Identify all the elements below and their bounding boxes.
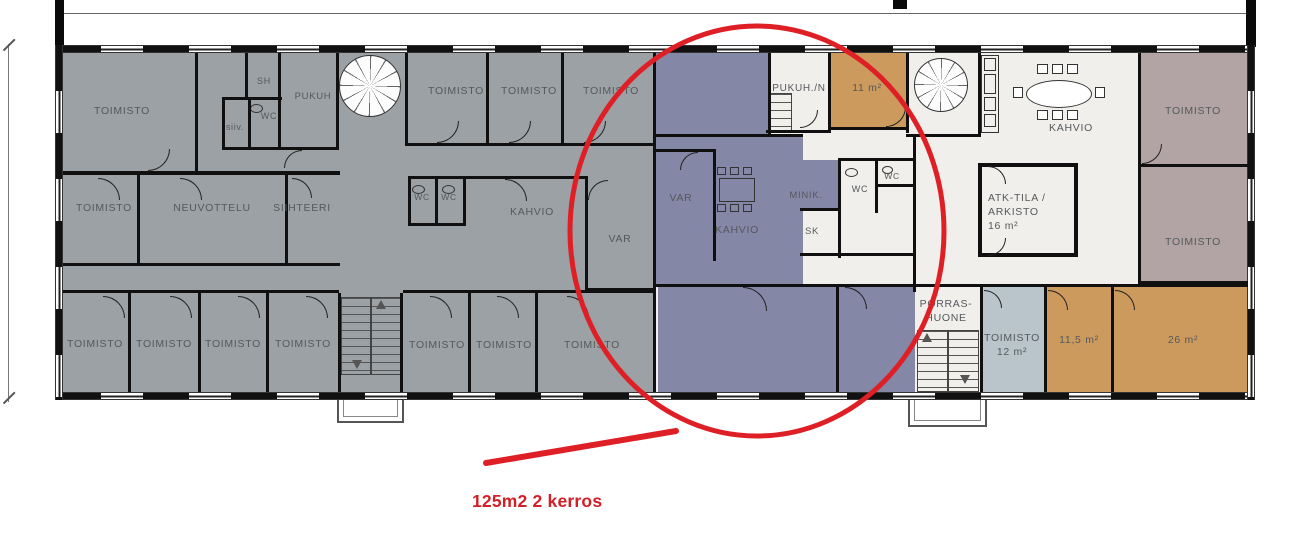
interior-wall [336,53,339,150]
room-label: TOIMISTO [476,338,532,352]
interior-wall [535,293,538,392]
interior-wall [338,293,341,392]
fixture [984,58,996,71]
interior-wall [248,100,251,150]
interior-wall [978,53,981,135]
interior-wall [656,134,803,137]
room-label: KAHVIO [715,223,759,237]
dimension-tick [3,39,15,51]
room-toimisto-mauve-bottom [1140,166,1248,282]
interior-wall [285,175,288,263]
interior-wall [63,263,340,266]
exterior-wall-bottom [55,392,1255,400]
interior-wall [656,149,716,152]
room-label: 26 m² [1168,333,1198,347]
fixture [717,167,726,175]
interior-wall [222,97,282,100]
fixture [984,74,996,94]
staircase [341,297,401,375]
room-label: TOIMISTO [409,338,465,352]
room-label: 11,5 m² [1059,333,1099,347]
fixture [1095,87,1105,98]
interior-wall [585,176,588,291]
room-label: SH [257,74,271,88]
fixture [719,178,755,202]
stair-direction-arrow [376,300,386,309]
dimension-line [8,44,9,402]
exterior-wall-left [55,45,63,400]
interior-wall [713,151,716,261]
room-label: SIIHTEERI [273,201,331,215]
room-label: TOIMISTO [76,201,132,215]
interior-wall [906,53,909,133]
room-label: WC [852,182,868,196]
spiral-stair-icon [914,58,968,112]
interior-wall [278,53,281,150]
interior-wall [766,130,831,133]
interior-wall [195,53,198,173]
room-label: TOIMISTO [205,337,261,351]
room-label: siiv. [226,120,244,134]
interior-wall [245,53,248,100]
interior-wall [468,293,471,392]
dimension-tick [3,392,15,404]
interior-wall [878,184,915,187]
wall-segment [893,0,907,9]
interior-wall [1044,287,1047,392]
interior-wall [435,176,438,226]
room-label: PUKUH [295,90,332,104]
room-label: TOIMISTO [275,337,331,351]
roof-edge-line [55,13,1255,14]
room-label: PUKUH./N [772,82,825,96]
fixture [1067,110,1078,120]
fixture [730,167,739,175]
fixture [1037,110,1048,120]
fixture [984,114,996,127]
room-label: TOIMISTO [1165,235,1221,249]
interior-wall [800,253,915,256]
fixture [1067,64,1078,74]
interior-wall [656,284,915,287]
room-label: ATK-TILA / ARKISTO 16 m² [988,191,1046,233]
room-label: VAR [609,232,632,246]
interior-wall [836,287,839,392]
interior-wall [463,176,588,179]
staircase [770,93,792,133]
exterior-wall-right [1247,45,1255,400]
interior-wall [915,284,1248,287]
room-label: PORRAS- HUONE [920,297,973,325]
interior-wall [913,134,916,292]
fixture [984,97,996,111]
room-label: WC [261,109,277,123]
interior-wall [768,53,771,137]
room-label: NEUVOTTELU [173,201,251,215]
room-label: 11 m² [852,81,882,95]
room-label: TOIMISTO [67,337,123,351]
annotation-pointer-line [486,431,676,463]
fixture [743,204,752,212]
interior-wall [980,287,983,392]
floorplan-canvas: TOIMISTOSHsiiv.WCPUKUHTOIMISTOTOIMISTOTO… [0,0,1291,554]
fixture [1052,110,1063,120]
interior-wall [198,293,201,392]
wall-segment [1246,0,1256,47]
stair-direction-arrow [352,360,362,369]
room-label: TOIMISTO [1165,104,1221,118]
interior-wall [486,53,489,145]
fixture [1013,87,1023,98]
room-label: WC [884,169,900,183]
interior-wall [405,143,656,146]
fixture [1037,64,1048,74]
interior-wall [405,53,408,145]
room-label: TOIMISTO [564,338,620,352]
room-label: VAR [670,191,693,205]
interior-wall [830,127,909,130]
room-label: TOIMISTO 12 m² [984,331,1040,359]
room-label: KAHVIO [510,205,554,219]
interior-wall [1138,53,1141,285]
interior-wall [63,171,340,175]
room-var-kahvio-purple [656,137,803,287]
room-label: TOIMISTO [136,337,192,351]
room-label: TOIMISTO [501,84,557,98]
room-label: WC [414,190,430,204]
interior-wall [63,290,339,293]
interior-wall [408,176,411,226]
interior-wall [800,208,840,211]
interior-wall [1138,281,1248,284]
wall-segment [55,0,64,50]
interior-wall [653,53,656,392]
fixture [845,168,858,177]
fixture [717,204,726,212]
interior-wall [128,293,131,392]
fixture [743,167,752,175]
fixture [1052,64,1063,74]
stair-direction-arrow [960,375,970,384]
room-label: WC [441,190,457,204]
room-label: MINIK. [789,189,822,203]
interior-wall [1111,287,1114,392]
room-label: SK [805,225,819,239]
spiral-stair-icon [339,55,401,117]
room-label: TOIMISTO [428,84,484,98]
interior-wall [906,134,981,137]
interior-wall [828,53,831,133]
interior-wall [1138,164,1248,167]
exterior-wall-top [55,45,1255,53]
interior-wall [400,293,403,392]
stair-direction-arrow [922,333,932,342]
annotation-text: 125m2 2 kerros [472,491,602,512]
room-label: TOIMISTO [94,104,150,118]
interior-wall [561,53,564,145]
interior-wall [266,293,269,392]
interior-wall [463,176,466,226]
interior-wall [222,97,225,150]
room-open-office-purple-top [656,53,768,137]
fixture [730,204,739,212]
interior-wall [403,290,656,293]
interior-wall [222,147,339,150]
room-label: TOIMISTO [583,84,639,98]
fixture [1026,80,1092,108]
room-label: KAHVIO [1049,121,1093,135]
interior-wall [137,175,140,263]
